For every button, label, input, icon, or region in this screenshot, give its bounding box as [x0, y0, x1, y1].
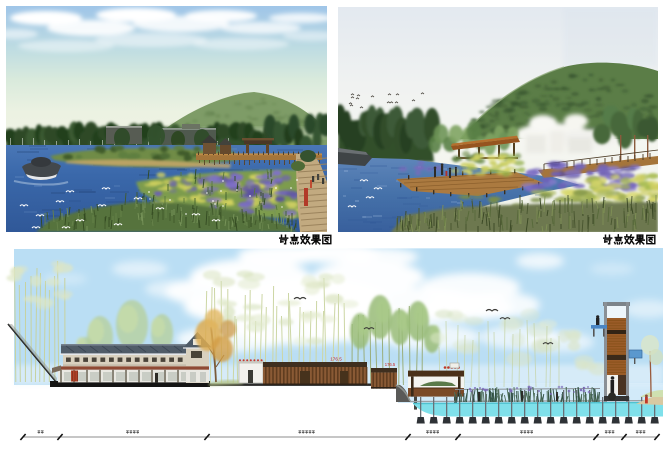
svg-text:176.5: 176.5 [385, 362, 396, 367]
svg-text:176.5: 176.5 [330, 357, 342, 362]
